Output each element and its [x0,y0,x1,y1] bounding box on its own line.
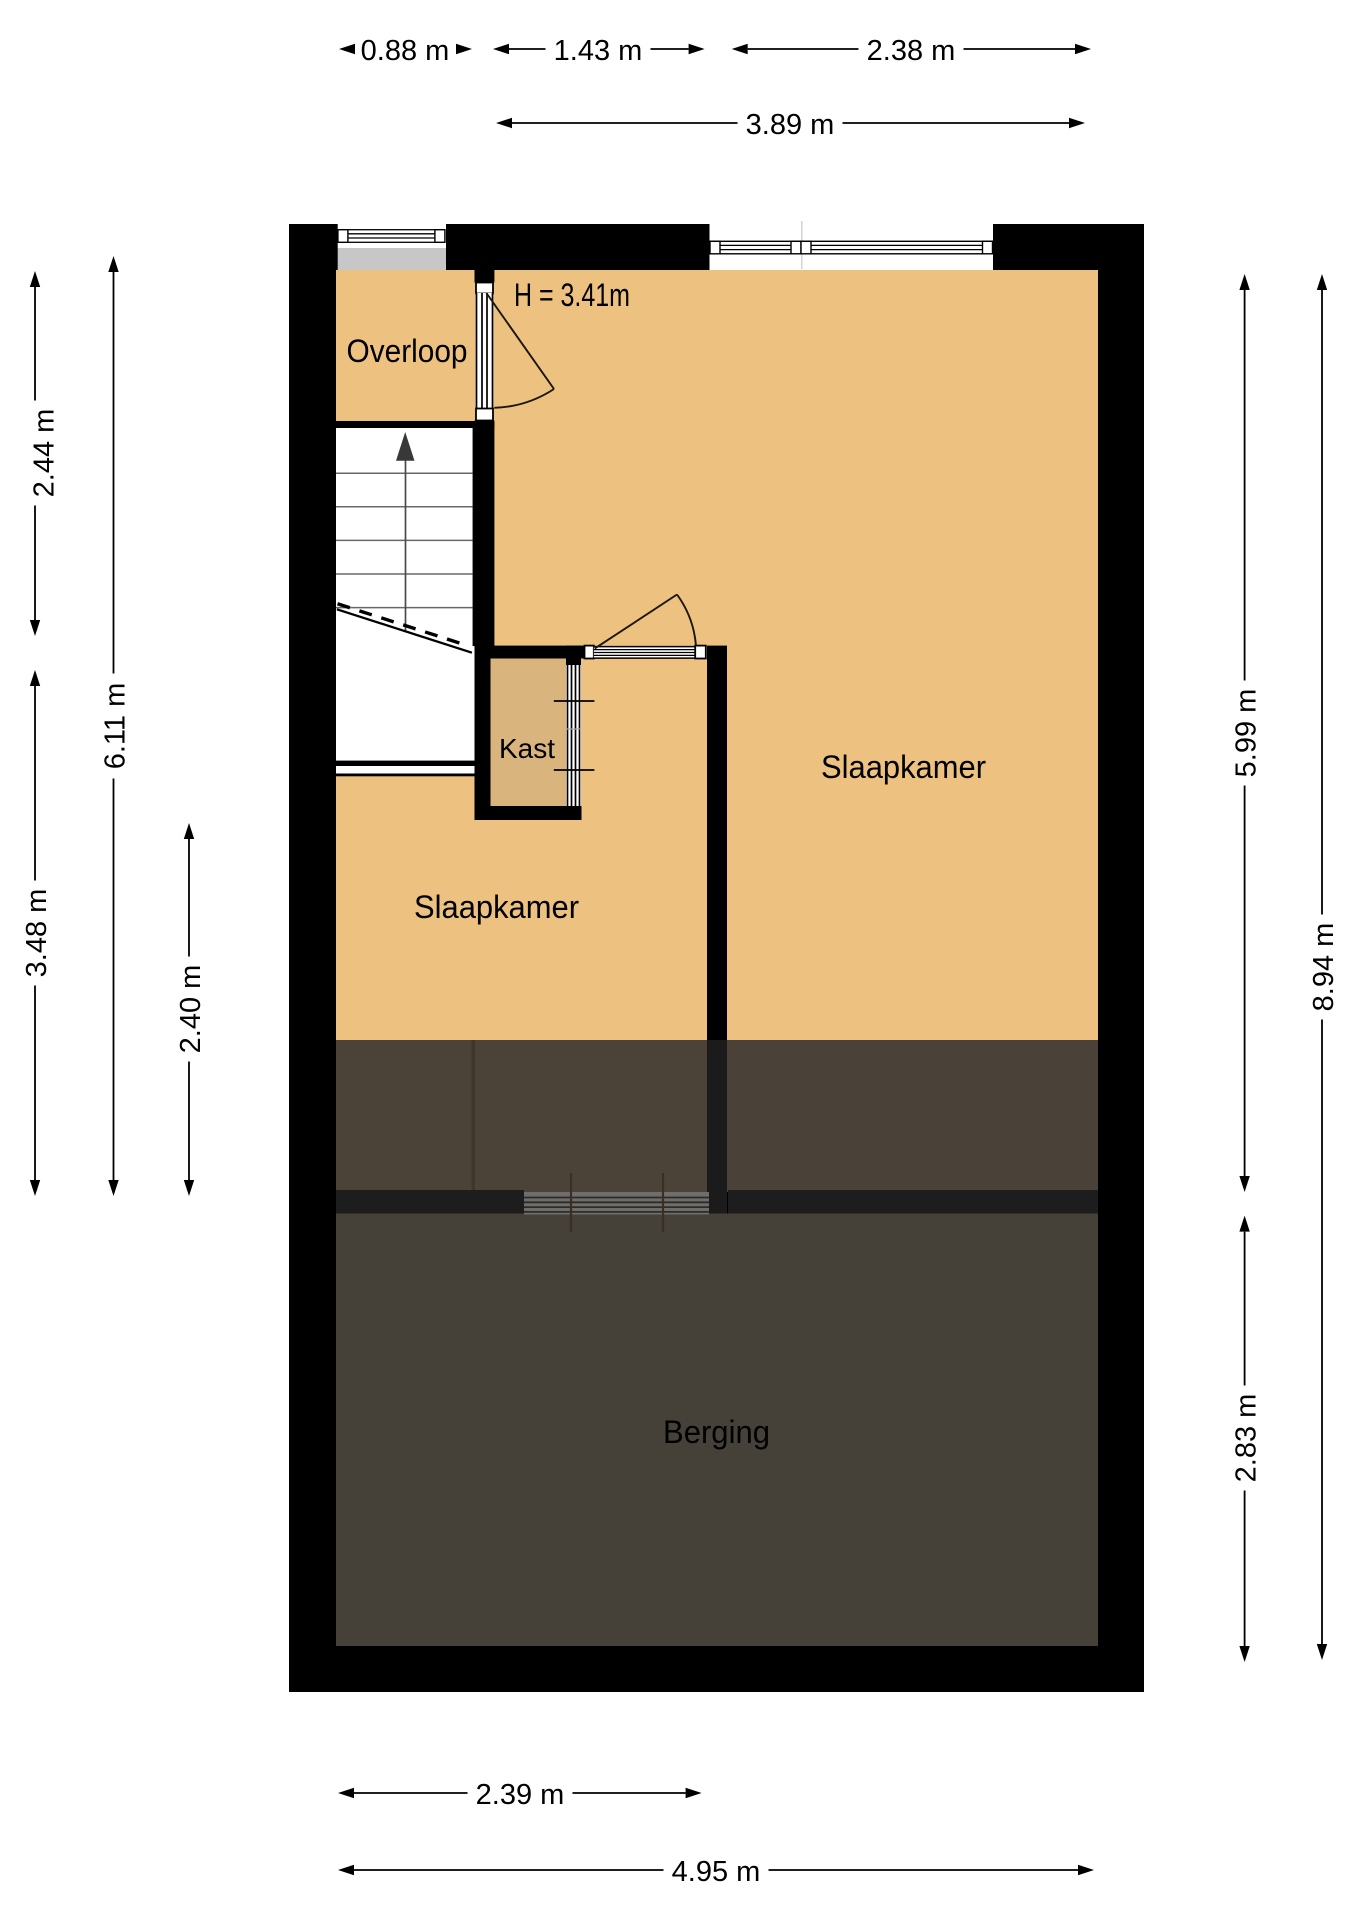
svg-text:2.39 m: 2.39 m [476,1779,565,1811]
svg-text:8.94 m: 8.94 m [1308,923,1340,1012]
svg-text:2.44 m: 2.44 m [29,409,61,498]
svg-text:5.99 m: 5.99 m [1231,689,1263,778]
svg-text:Kast: Kast [499,733,555,764]
svg-text:2.40 m: 2.40 m [175,965,207,1054]
svg-text:1.43 m: 1.43 m [554,35,643,67]
svg-text:3.89 m: 3.89 m [746,109,835,141]
svg-text:2.83 m: 2.83 m [1231,1394,1263,1483]
svg-text:6.11 m: 6.11 m [100,683,132,770]
svg-text:Berging: Berging [663,1414,770,1450]
svg-text:Overloop: Overloop [347,333,468,369]
svg-text:Slaapkamer: Slaapkamer [821,749,986,785]
svg-text:Slaapkamer: Slaapkamer [414,889,579,925]
svg-text:4.95 m: 4.95 m [672,1856,761,1888]
svg-text:0.88 m: 0.88 m [361,35,450,67]
svg-text:H = 3.41m: H = 3.41m [514,277,630,313]
svg-text:3.48 m: 3.48 m [21,889,53,978]
svg-text:2.38 m: 2.38 m [867,35,956,67]
